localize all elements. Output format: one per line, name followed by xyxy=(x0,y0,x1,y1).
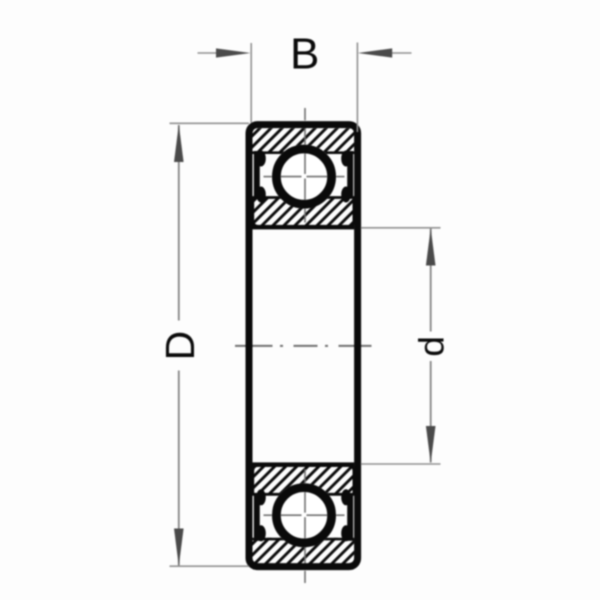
svg-text:B: B xyxy=(290,30,319,79)
svg-text:d: d xyxy=(411,336,451,357)
svg-text:D: D xyxy=(157,331,203,361)
